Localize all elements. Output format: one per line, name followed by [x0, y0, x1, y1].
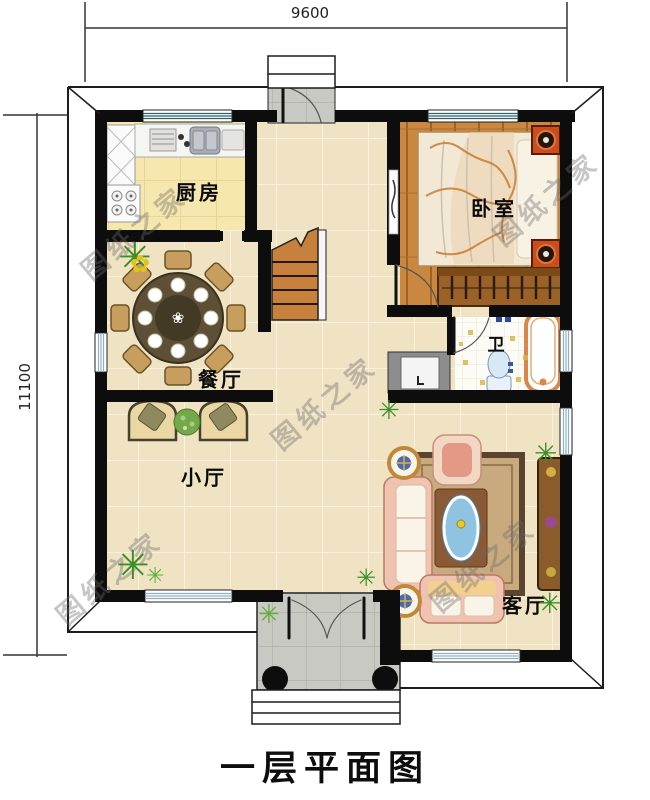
room-label-kitchen: 厨房 — [176, 177, 222, 206]
floorplan-graphics — [0, 0, 650, 800]
dimension-height-label: 11100 — [16, 352, 34, 422]
room-label-bath: 卫 — [488, 331, 505, 356]
room-label-bedroom: 卧室 — [471, 193, 517, 222]
room-label-hall: 小厅 — [181, 462, 227, 491]
plan-title: 一层平面图 — [220, 740, 430, 791]
dimension-width-label: 9600 — [270, 4, 350, 22]
bedroom-wall-niche — [389, 170, 398, 234]
floorplan-canvas: 9600 11100 厨房 卧室 餐厅 卫 小厅 客厅 图纸之家 图纸之家 图纸… — [0, 0, 650, 800]
room-label-dining: 餐厅 — [198, 364, 244, 393]
table-flower-icon: ❀ — [172, 309, 185, 327]
room-label-living: 客厅 — [502, 590, 548, 619]
